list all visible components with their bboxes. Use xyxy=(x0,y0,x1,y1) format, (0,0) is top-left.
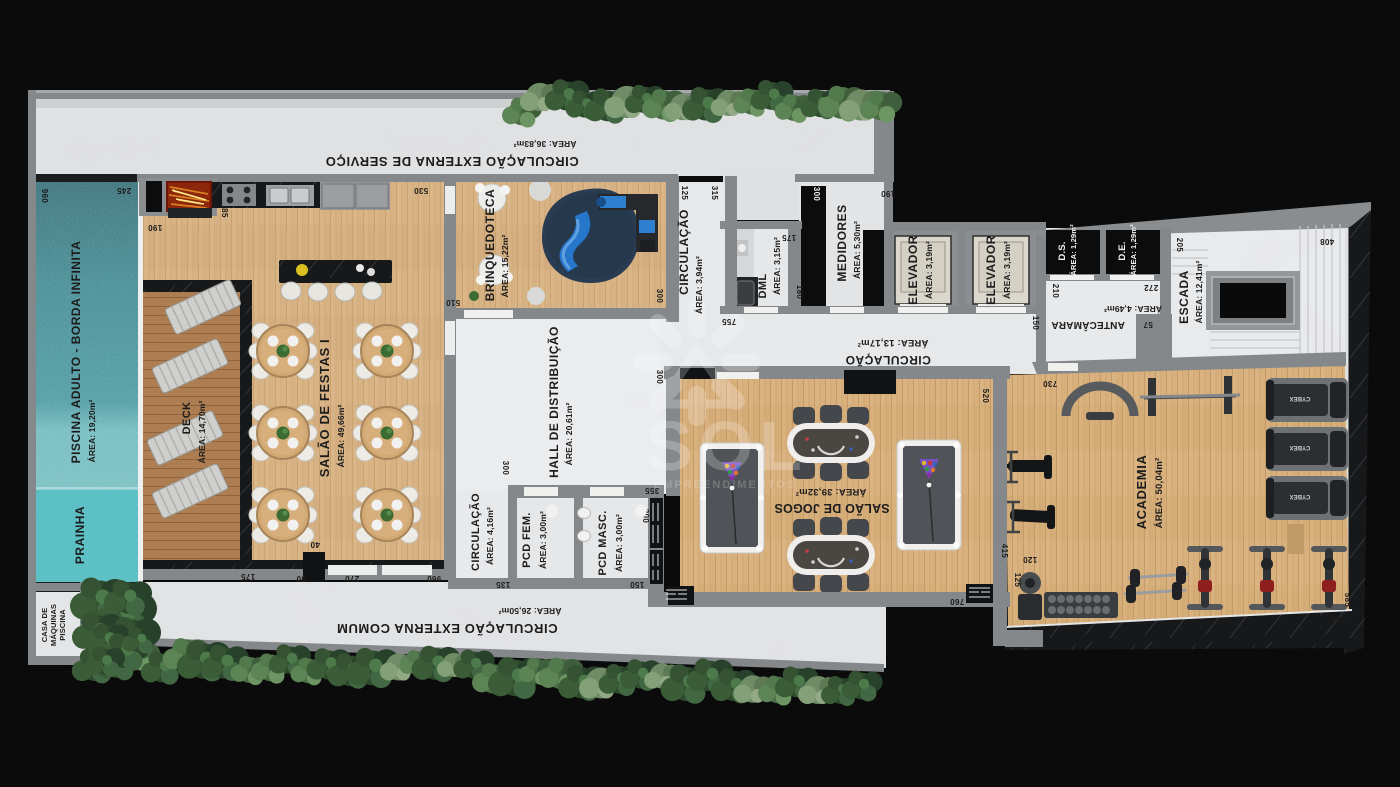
svg-text:960: 960 xyxy=(427,574,442,583)
svg-text:730: 730 xyxy=(1043,379,1058,388)
svg-text:760: 760 xyxy=(950,597,965,606)
svg-text:SALÃO DE FESTAS I: SALÃO DE FESTAS I xyxy=(317,339,332,478)
svg-text:150: 150 xyxy=(1031,316,1040,331)
svg-text:175: 175 xyxy=(782,233,797,242)
svg-text:355: 355 xyxy=(645,486,660,495)
svg-text:SALÃO DE JOGOS: SALÃO DE JOGOS xyxy=(774,501,889,516)
svg-text:ANTECÂMARA: ANTECÂMARA xyxy=(1051,319,1125,332)
svg-text:ÁREA: 20,61m²: ÁREA: 20,61m² xyxy=(564,403,574,466)
svg-text:135: 135 xyxy=(496,580,511,589)
svg-text:ÁREA: 1,29m²: ÁREA: 1,29m² xyxy=(1069,224,1078,276)
svg-text:ÁREA: 1,29m²: ÁREA: 1,29m² xyxy=(1129,224,1138,276)
svg-text:210: 210 xyxy=(1051,284,1060,299)
svg-text:300: 300 xyxy=(501,461,510,476)
svg-text:300: 300 xyxy=(655,370,664,385)
svg-text:EMPREENDIMENTOS: EMPREENDIMENTOS xyxy=(654,479,796,491)
svg-text:ÁREA: 5,30m²: ÁREA: 5,30m² xyxy=(852,221,862,279)
svg-text:300: 300 xyxy=(812,187,821,202)
svg-text:175: 175 xyxy=(241,572,256,581)
svg-text:815: 815 xyxy=(1331,615,1346,624)
svg-text:CYBEX: CYBEX xyxy=(1290,395,1311,401)
svg-text:MÁQUINAS: MÁQUINAS xyxy=(49,604,58,646)
svg-text:ÁREA: 3,19m²: ÁREA: 3,19m² xyxy=(1002,241,1012,299)
svg-text:ÁREA: 3,94m²: ÁREA: 3,94m² xyxy=(694,256,704,314)
svg-text:PRAINHA: PRAINHA xyxy=(73,506,87,564)
svg-text:205: 205 xyxy=(1175,238,1184,253)
svg-text:125: 125 xyxy=(1013,573,1022,588)
svg-text:960: 960 xyxy=(40,189,49,204)
svg-text:DECK: DECK xyxy=(181,402,193,435)
svg-text:315: 315 xyxy=(710,186,719,201)
svg-text:125: 125 xyxy=(680,186,689,201)
svg-text:ÁREA: 14,70m²: ÁREA: 14,70m² xyxy=(197,401,207,464)
svg-text:755: 755 xyxy=(722,317,737,326)
svg-text:ÁREA: 4,49m²: ÁREA: 4,49m² xyxy=(1104,304,1162,314)
svg-text:585: 585 xyxy=(1343,593,1352,608)
svg-text:D.S.: D.S. xyxy=(1057,241,1068,260)
svg-text:ÁREA: 4,16m²: ÁREA: 4,16m² xyxy=(485,507,495,565)
svg-text:ESCADA: ESCADA xyxy=(1177,270,1191,324)
svg-text:ÁREA: 50,04m²: ÁREA: 50,04m² xyxy=(1154,458,1165,529)
svg-text:ÁREA: 3,19m²: ÁREA: 3,19m² xyxy=(924,241,934,299)
svg-text:57: 57 xyxy=(1143,320,1153,329)
svg-text:120: 120 xyxy=(1023,555,1038,564)
svg-text:245: 245 xyxy=(117,186,132,195)
svg-text:CASA DE: CASA DE xyxy=(40,608,49,643)
svg-text:MEDIDORES: MEDIDORES xyxy=(835,204,849,281)
svg-text:ÁREA: 36,83m²: ÁREA: 36,83m² xyxy=(514,139,577,149)
svg-text:BRINQUEDOTECA: BRINQUEDOTECA xyxy=(483,189,497,302)
svg-text:300: 300 xyxy=(655,289,664,304)
svg-text:40: 40 xyxy=(310,540,320,549)
svg-text:SOL: SOL xyxy=(646,407,808,485)
svg-text:ÁREA: 26,50m²: ÁREA: 26,50m² xyxy=(499,606,562,616)
svg-text:190: 190 xyxy=(881,189,896,198)
svg-text:PISCINA: PISCINA xyxy=(58,609,67,641)
svg-text:CIRCULAÇÃO EXTERNA COMUM: CIRCULAÇÃO EXTERNA COMUM xyxy=(336,621,557,636)
svg-text:90: 90 xyxy=(296,574,306,583)
svg-text:ÁREA: 12,41m²: ÁREA: 12,41m² xyxy=(1194,261,1204,324)
svg-text:ÁREA: 19,20m²: ÁREA: 19,20m² xyxy=(87,400,97,463)
svg-text:CIRCULAÇÃO: CIRCULAÇÃO xyxy=(676,209,691,295)
svg-text:PISCINA ADULTO - BORDA INFINIT: PISCINA ADULTO - BORDA INFINITA xyxy=(69,241,83,464)
svg-text:D.E.: D.E. xyxy=(1117,241,1128,260)
svg-text:ÁREA: 13,17m²: ÁREA: 13,17m² xyxy=(858,337,929,348)
svg-text:150: 150 xyxy=(630,580,645,589)
svg-text:ÁREA: 39,32m²: ÁREA: 39,32m² xyxy=(796,486,867,497)
svg-text:85: 85 xyxy=(220,208,229,218)
svg-text:272: 272 xyxy=(1144,283,1159,292)
svg-text:ELEVADOR: ELEVADOR xyxy=(984,235,998,305)
svg-text:415: 415 xyxy=(1000,544,1009,559)
svg-text:ÁREA: 3,15m²: ÁREA: 3,15m² xyxy=(772,237,782,295)
svg-text:PCD MASC.: PCD MASC. xyxy=(597,510,609,575)
svg-text:CIRCULAÇÃO EXTERNA DE SERVIÇO: CIRCULAÇÃO EXTERNA DE SERVIÇO xyxy=(325,154,579,169)
svg-text:ELEVADOR: ELEVADOR xyxy=(906,235,920,305)
svg-text:ACADEMIA: ACADEMIA xyxy=(1134,455,1149,530)
svg-text:ÁREA: 49,66m²: ÁREA: 49,66m² xyxy=(336,405,346,468)
svg-text:DML: DML xyxy=(757,273,769,298)
svg-text:ÁREA: 3,00m²: ÁREA: 3,00m² xyxy=(538,511,548,569)
svg-text:408: 408 xyxy=(1320,237,1335,246)
svg-text:ÁREA: 15,22m²: ÁREA: 15,22m² xyxy=(500,235,510,298)
svg-text:HALL DE DISTRIBUIÇÃO: HALL DE DISTRIBUIÇÃO xyxy=(546,326,561,478)
svg-text:CIRCULAÇÃO: CIRCULAÇÃO xyxy=(469,493,482,571)
svg-text:180: 180 xyxy=(795,285,804,300)
svg-text:510: 510 xyxy=(446,298,461,307)
svg-text:530: 530 xyxy=(414,186,429,195)
svg-text:270: 270 xyxy=(345,574,360,583)
svg-text:190: 190 xyxy=(148,223,163,232)
svg-text:ÁREA: 3,00m²: ÁREA: 3,00m² xyxy=(614,514,624,572)
svg-text:CIRCULAÇÃO: CIRCULAÇÃO xyxy=(845,353,931,368)
svg-text:PCD FEM.: PCD FEM. xyxy=(521,512,533,568)
svg-text:520: 520 xyxy=(981,389,990,404)
